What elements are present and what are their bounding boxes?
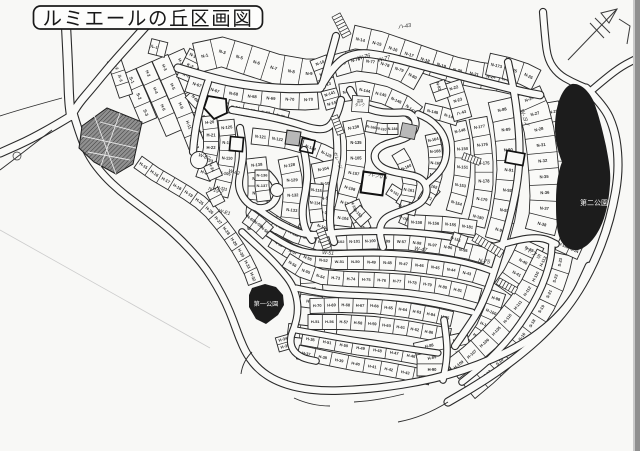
svg-text:N-101: N-101	[349, 239, 361, 244]
svg-text:N-105: N-105	[350, 155, 362, 160]
svg-text:N-47: N-47	[399, 261, 409, 267]
svg-text:N-110: N-110	[222, 155, 234, 161]
svg-text:N-70: N-70	[285, 97, 295, 102]
svg-text:N-50: N-50	[351, 259, 360, 264]
svg-text:N-137: N-137	[257, 183, 269, 188]
svg-text:N-168: N-168	[430, 148, 442, 154]
svg-text:H-76: H-76	[377, 277, 387, 283]
svg-text:N-151: N-151	[457, 164, 469, 170]
svg-text:N-178: N-178	[478, 179, 490, 184]
svg-text:H-56: H-56	[325, 319, 334, 324]
svg-text:第一公園: 第一公園	[254, 300, 279, 308]
svg-text:N-69: N-69	[266, 95, 276, 101]
svg-text:N-70: N-70	[304, 97, 314, 103]
svg-text:N-37: N-37	[540, 206, 550, 212]
svg-text:H-69: H-69	[327, 302, 337, 307]
svg-text:H-68: H-68	[341, 302, 351, 307]
svg-text:W-51: W-51	[322, 250, 335, 257]
svg-text:H-67: H-67	[356, 303, 366, 308]
svg-text:H-57: H-57	[339, 319, 349, 325]
svg-text:N-48: N-48	[383, 260, 393, 265]
svg-text:N-150: N-150	[457, 146, 469, 152]
svg-text:N-9: N-9	[305, 71, 313, 76]
svg-text:H-90: H-90	[428, 367, 438, 372]
svg-text:N-156: N-156	[428, 220, 440, 226]
svg-text:H-51: H-51	[311, 319, 320, 324]
svg-text:N-35: N-35	[539, 174, 549, 180]
svg-text:H-73: H-73	[331, 275, 341, 281]
svg-text:N-132: N-132	[287, 192, 299, 198]
svg-text:N-49: N-49	[367, 259, 377, 264]
svg-text:N-68: N-68	[247, 93, 257, 99]
svg-text:N-46: N-46	[415, 262, 425, 268]
svg-text:H-58: H-58	[354, 320, 364, 326]
svg-text:N-32: N-32	[538, 158, 548, 164]
svg-text:N-135: N-135	[350, 140, 362, 145]
svg-text:H-74: H-74	[347, 276, 357, 281]
svg-text:W-51: W-51	[335, 259, 345, 264]
svg-text:N-92: N-92	[503, 187, 513, 193]
svg-text:N-129: N-129	[286, 177, 298, 183]
svg-text:H-70: H-70	[313, 303, 323, 308]
svg-text:第二公園: 第二公園	[580, 198, 608, 207]
svg-text:N-91: N-91	[504, 167, 514, 173]
svg-text:N-176: N-176	[477, 142, 489, 148]
svg-text:N-100: N-100	[365, 238, 377, 243]
svg-text:N-184: N-184	[388, 127, 398, 131]
svg-text:ルミエールの丘区画図: ルミエールの丘区画図	[42, 8, 253, 30]
svg-text:H-77: H-77	[393, 278, 403, 284]
svg-text:H-21: H-21	[206, 132, 216, 137]
svg-text:H-22: H-22	[206, 145, 216, 150]
svg-text:N-158: N-158	[411, 219, 423, 225]
svg-text:H-59: H-59	[368, 321, 378, 327]
svg-text:N-36: N-36	[540, 190, 550, 196]
svg-text:H-75: H-75	[362, 277, 372, 282]
svg-text:タンク: タンク	[355, 102, 365, 107]
svg-text:N-136: N-136	[257, 172, 269, 177]
svg-text:W-57: W-57	[397, 239, 407, 244]
